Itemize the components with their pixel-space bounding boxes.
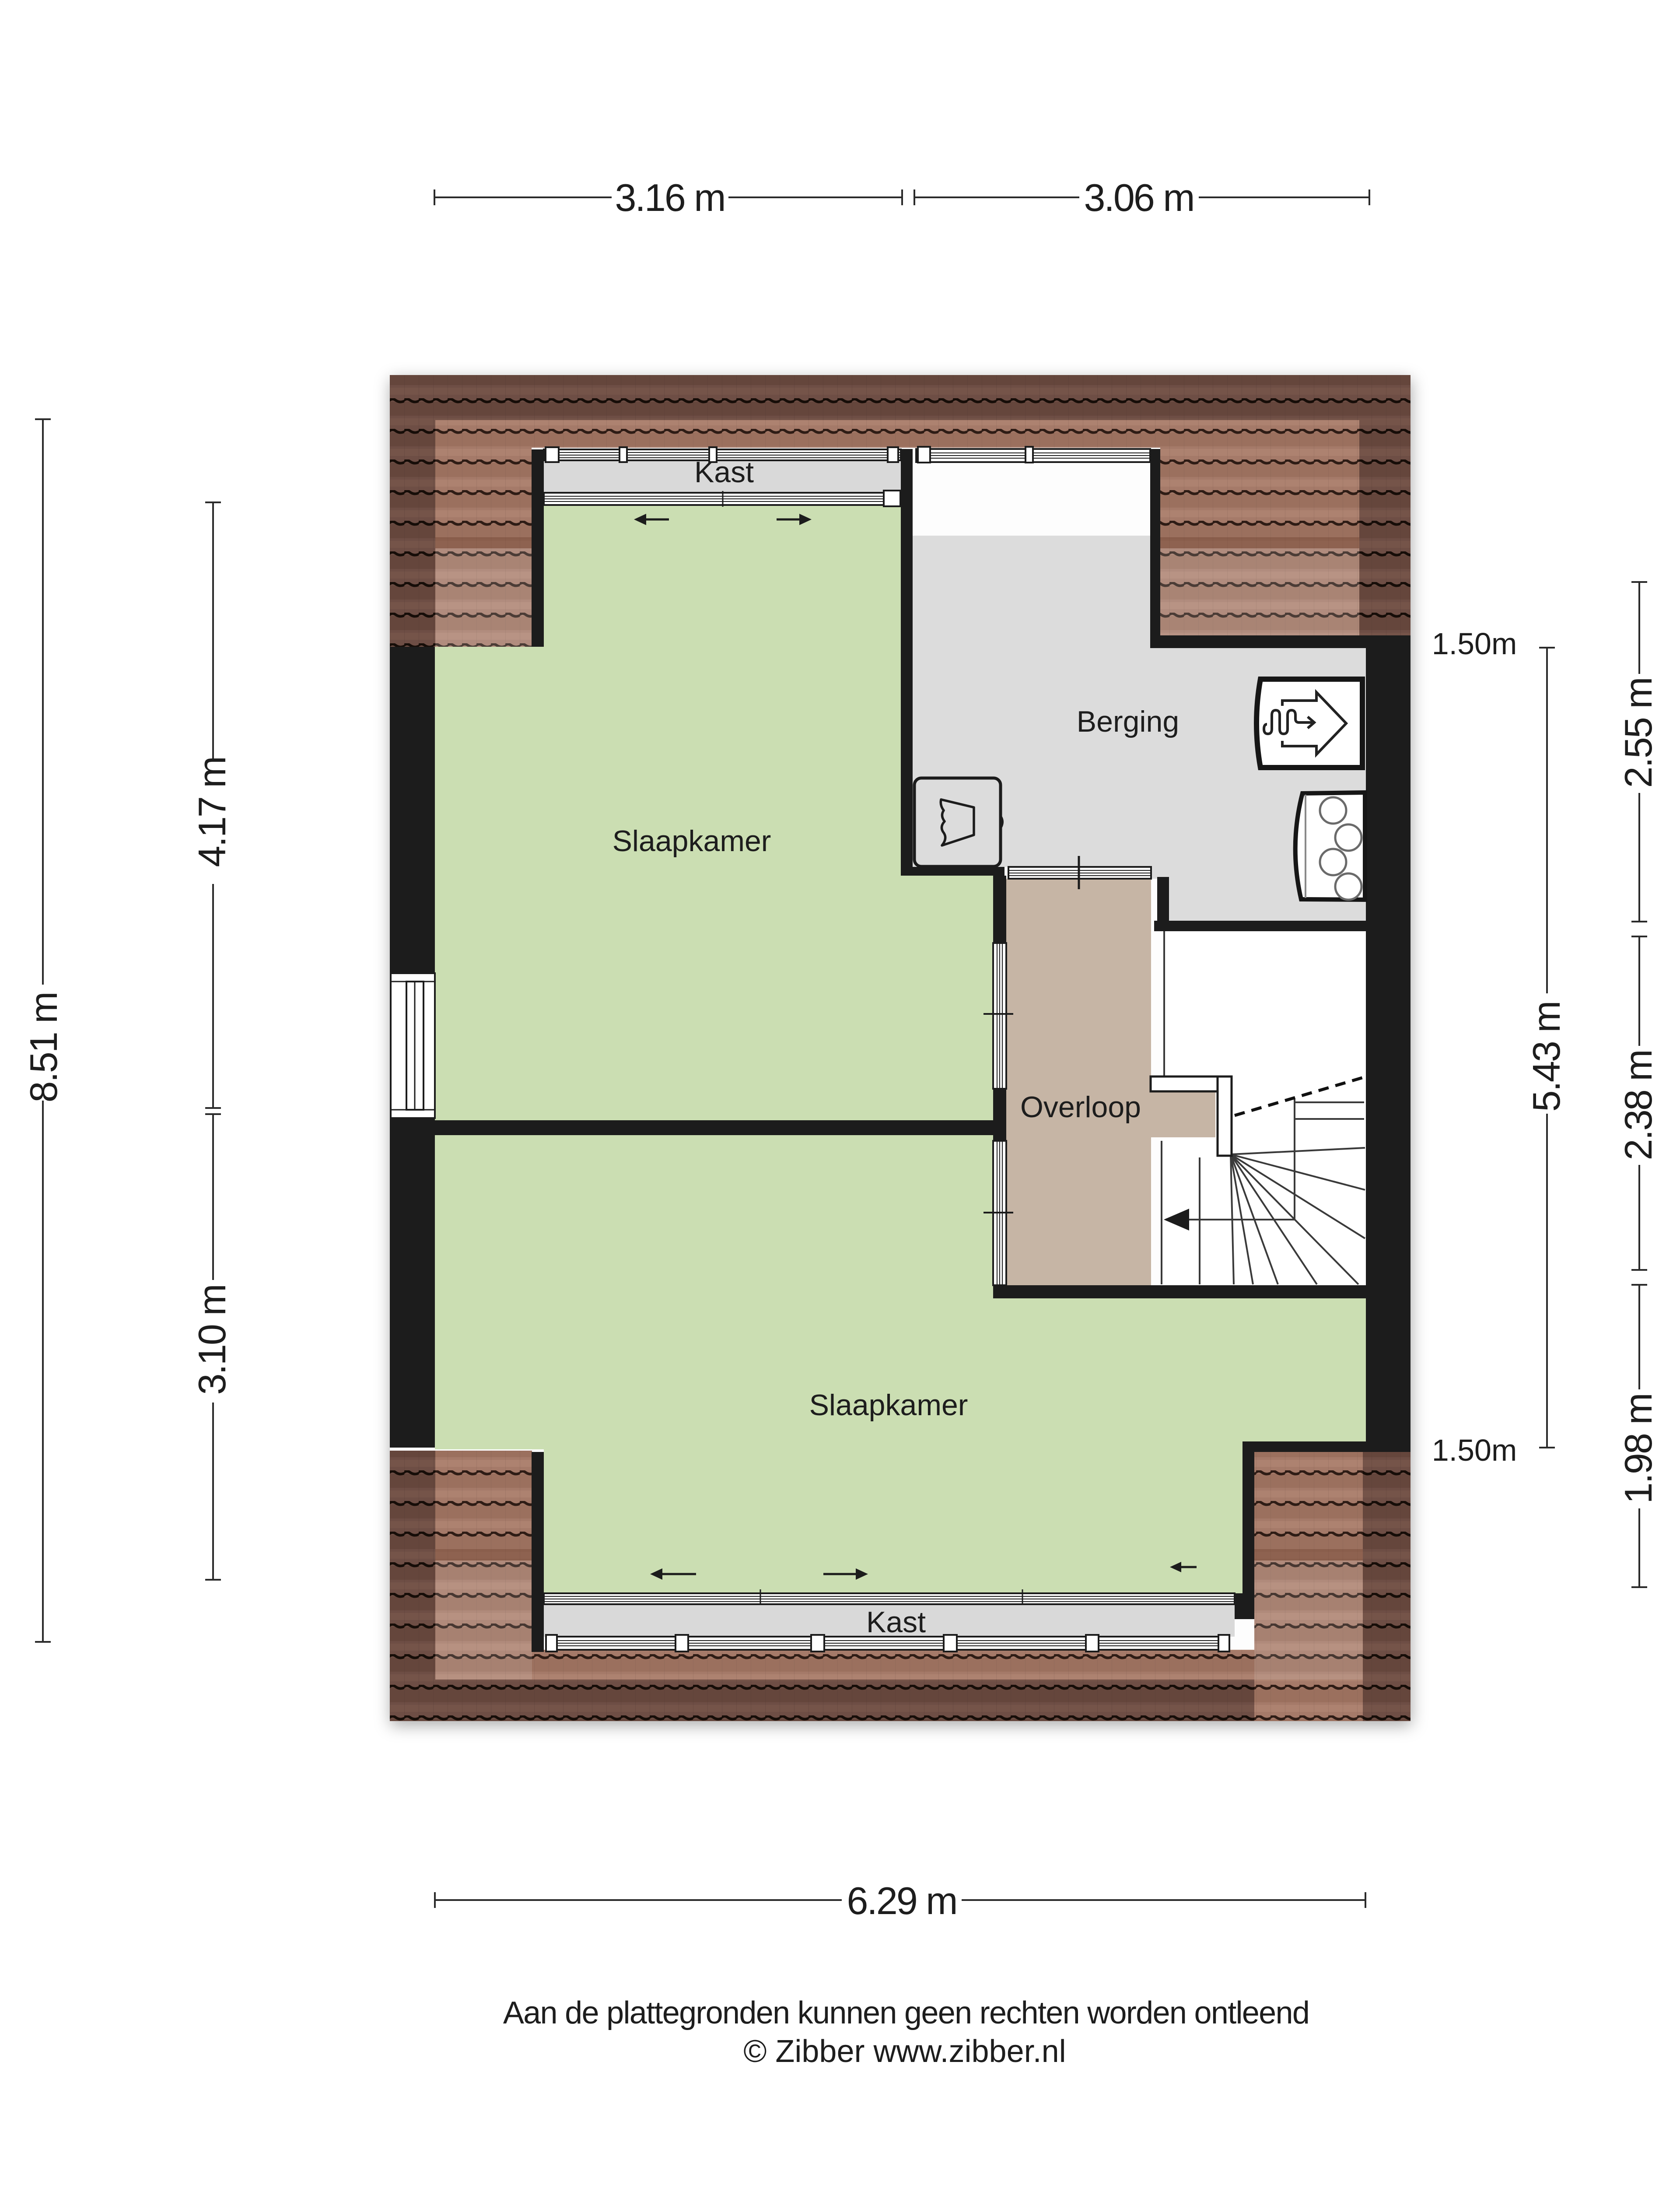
svg-text:© Zibber www.zibber.nl: © Zibber www.zibber.nl: [743, 2034, 1066, 2069]
svg-text:1.50m: 1.50m: [1432, 627, 1517, 661]
svg-text:2.38 m: 2.38 m: [1617, 1050, 1660, 1160]
svg-text:3.10 m: 3.10 m: [190, 1285, 234, 1395]
svg-text:Slaapkamer: Slaapkamer: [612, 824, 771, 858]
svg-text:3.16 m: 3.16 m: [615, 176, 724, 219]
svg-text:Overloop: Overloop: [1020, 1090, 1141, 1124]
svg-text:5.43 m: 5.43 m: [1525, 1002, 1568, 1112]
svg-text:1.98 m: 1.98 m: [1617, 1394, 1660, 1504]
svg-text:Kast: Kast: [866, 1606, 926, 1639]
svg-text:Berging: Berging: [1077, 705, 1179, 738]
svg-text:1.50m: 1.50m: [1432, 1433, 1517, 1467]
svg-text:2.55 m: 2.55 m: [1617, 678, 1660, 788]
svg-text:6.29 m: 6.29 m: [847, 1879, 956, 1922]
svg-text:Aan de plattegronden kunnen ge: Aan de plattegronden kunnen geen rechten…: [503, 1995, 1309, 2030]
svg-text:3.06 m: 3.06 m: [1084, 176, 1193, 219]
svg-text:8.51 m: 8.51 m: [22, 992, 65, 1102]
svg-text:4.17 m: 4.17 m: [190, 757, 234, 867]
svg-text:Slaapkamer: Slaapkamer: [809, 1389, 968, 1422]
svg-text:Kast: Kast: [694, 456, 754, 489]
